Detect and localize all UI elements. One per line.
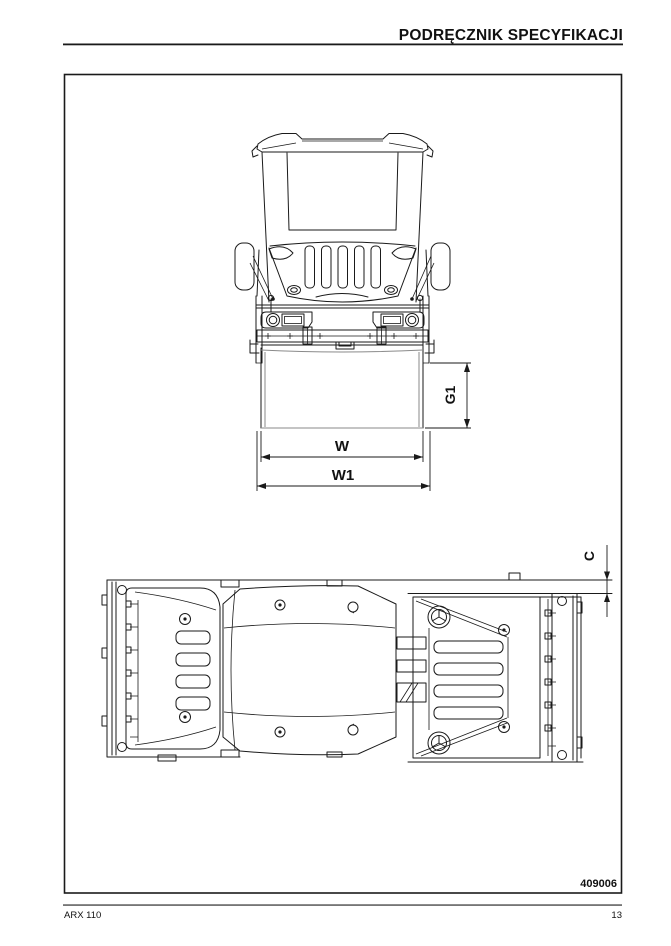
- dim-label-w1: W1: [332, 467, 355, 484]
- frame-posts: [268, 295, 422, 312]
- dim-label-g1: G1: [442, 385, 458, 404]
- footer-model: ARX 110: [64, 910, 101, 921]
- footer-rule: [63, 905, 622, 906]
- right-vent-slots: [434, 641, 503, 719]
- engine-hood-top: [408, 597, 583, 762]
- manual-page: PODRĘCZNIK SPECYFIKACJI: [0, 0, 671, 946]
- fuel-cap-top: [428, 606, 450, 628]
- front-view-drawing: G1 W W1: [235, 134, 471, 492]
- dim-label-w: W: [335, 438, 350, 455]
- left-vent-slots: [176, 631, 210, 710]
- dimension-w: W: [261, 431, 423, 462]
- fuel-cap-bottom: [428, 732, 450, 754]
- hood-vents: [305, 246, 381, 288]
- dimension-c: C: [581, 545, 610, 617]
- footer-page-number: 13: [611, 910, 622, 921]
- plan-view-drawing: C: [102, 545, 612, 762]
- figure-number: 409006: [580, 878, 617, 890]
- sprinkler-bar-right: [545, 599, 556, 756]
- headlight-cluster-right: [373, 312, 424, 328]
- dim-label-c: C: [581, 551, 597, 561]
- cab-window: [262, 152, 423, 302]
- front-drum: [250, 340, 434, 428]
- headlight-cluster-left: [261, 312, 312, 328]
- left-frame-plate: [126, 588, 220, 749]
- page-header-title: PODRĘCZNIK SPECYFIKACJI: [399, 27, 623, 44]
- right-drum-top: [552, 594, 582, 763]
- canopy-top: [221, 573, 520, 757]
- sprinkler-bar-left: [126, 600, 138, 742]
- header-rule: [63, 44, 623, 46]
- articulation-joint: [397, 637, 426, 702]
- page-canvas: PODRĘCZNIK SPECYFIKACJI: [0, 0, 671, 946]
- engine-hood: [257, 246, 428, 302]
- dimension-g1: G1: [425, 363, 471, 428]
- scraper-bar: [257, 327, 428, 349]
- canopy-roof: [252, 134, 433, 158]
